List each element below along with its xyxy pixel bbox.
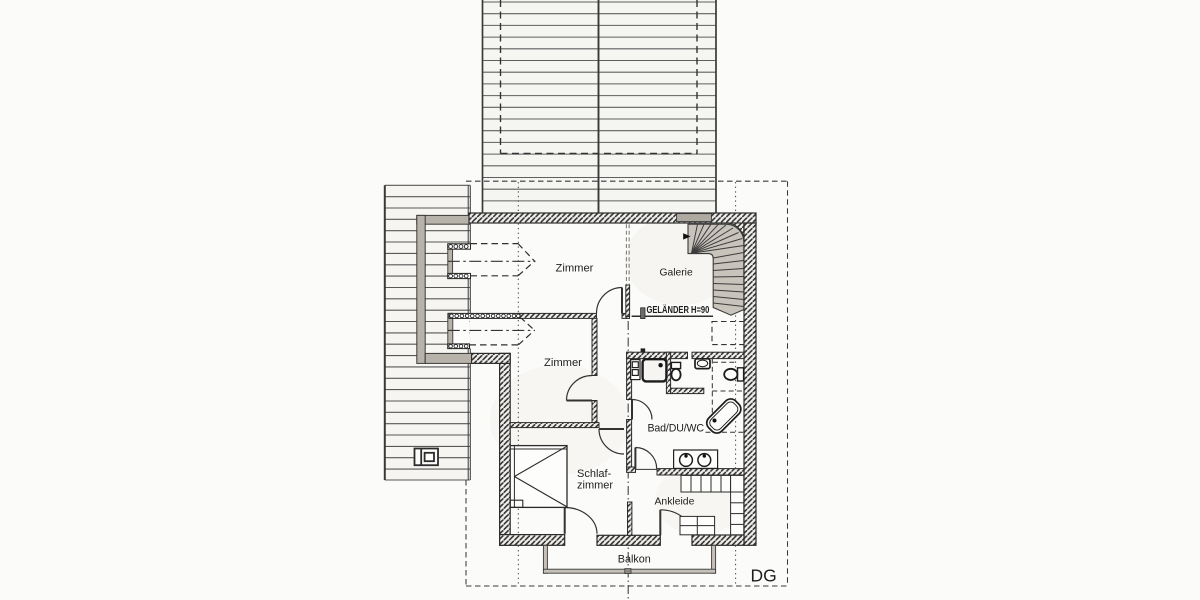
- svg-text:Bad/DU/WC: Bad/DU/WC: [648, 422, 705, 434]
- svg-text:Schlaf-: Schlaf-: [577, 468, 612, 480]
- svg-text:GELÄNDER H=90: GELÄNDER H=90: [647, 304, 710, 315]
- svg-text:Ankleide: Ankleide: [655, 497, 695, 508]
- svg-text:Zimmer: Zimmer: [544, 357, 582, 369]
- svg-text:Galerie: Galerie: [660, 268, 693, 279]
- svg-text:Balkon: Balkon: [618, 554, 651, 566]
- svg-text:DG: DG: [751, 566, 777, 586]
- svg-text:zimmer: zimmer: [577, 480, 613, 492]
- svg-text:Zimmer: Zimmer: [556, 263, 594, 275]
